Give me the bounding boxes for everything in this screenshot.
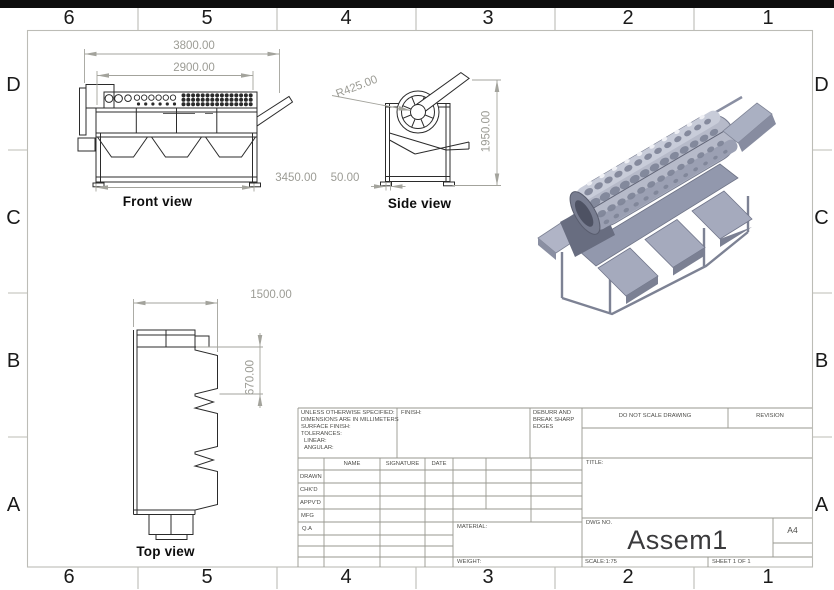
- zone-col-label: 6: [49, 566, 89, 588]
- scale-label: SCALE:1:75: [585, 559, 617, 566]
- dim-top-length: 1500.00: [223, 288, 319, 303]
- col-header-signature: SIGNATURE: [380, 461, 425, 468]
- tolerance-note-line: DIMENSIONS ARE IN MILLIMETERS: [301, 417, 399, 424]
- weight-label: WEIGHT:: [457, 559, 481, 566]
- zone-row-label: D: [1, 74, 26, 96]
- zone-row-label: B: [1, 350, 26, 372]
- tolerance-note-line: SURFACE FINISH:: [301, 424, 399, 431]
- side-view-drawing: [381, 73, 470, 186]
- zone-col-label: 3: [468, 7, 508, 29]
- dim-side-offset: 50.00: [310, 171, 380, 186]
- zone-col-label: 4: [326, 7, 366, 29]
- top-view-label: Top view: [103, 543, 228, 561]
- isometric-view: [538, 97, 776, 314]
- zone-col-label: 1: [748, 7, 788, 29]
- dim-front-overall: 3800.00: [146, 39, 242, 54]
- deburr-note: DEBURR AND BREAK SHARP EDGES: [533, 410, 574, 431]
- revision-label: REVISION: [728, 413, 812, 420]
- tolerance-note: UNLESS OTHERWISE SPECIFIED: DIMENSIONS A…: [301, 410, 399, 452]
- zone-col-label: 2: [608, 566, 648, 588]
- finish-label: FINISH:: [401, 410, 422, 417]
- dim-top-chute: 670.00: [244, 335, 259, 419]
- deburr-note-line: DEBURR AND: [533, 410, 574, 417]
- tolerance-note-line: UNLESS OTHERWISE SPECIFIED:: [301, 410, 399, 417]
- sheet-label: SHEET 1 OF 1: [712, 559, 751, 566]
- zone-row-label: D: [810, 74, 833, 96]
- row-label-chkd: CHK'D: [300, 487, 318, 494]
- zone-col-label: 3: [468, 566, 508, 588]
- zone-row-label: A: [1, 494, 26, 516]
- side-view-label: Side view: [357, 195, 482, 213]
- front-view-label: Front view: [95, 193, 220, 211]
- dwg-no-value: Assem1: [600, 524, 755, 556]
- dim-side-height: 1950.00: [480, 90, 495, 174]
- tolerance-note-line: TOLERANCES:: [301, 431, 399, 438]
- zone-col-label: 6: [49, 7, 89, 29]
- dim-front-drum: 2900.00: [146, 61, 242, 76]
- zone-row-label: C: [1, 207, 26, 229]
- paper-size-label: A4: [773, 524, 812, 537]
- col-header-name: NAME: [324, 461, 380, 468]
- zone-row-label: C: [810, 207, 833, 229]
- drawing-sheet-page: { "zones": { "columns": ["6","5","4","3"…: [0, 0, 834, 590]
- do-not-scale-label: DO NOT SCALE DRAWING: [582, 413, 728, 420]
- row-label-drawn: DRAWN: [300, 474, 322, 481]
- zone-row-label: A: [810, 494, 833, 516]
- title-label: TITLE:: [586, 460, 603, 467]
- deburr-note-line: EDGES: [533, 424, 574, 431]
- top-view-drawing: [134, 330, 218, 540]
- row-label-appvd: APPV'D: [300, 500, 321, 507]
- zone-row-label: B: [810, 350, 833, 372]
- deburr-note-line: BREAK SHARP: [533, 417, 574, 424]
- row-label-mfg: MFG: [301, 513, 314, 520]
- zone-col-label: 1: [748, 566, 788, 588]
- tolerance-note-line: ANGULAR:: [301, 445, 399, 452]
- row-label-qa: Q.A: [302, 526, 312, 533]
- tolerance-note-line: LINEAR:: [301, 438, 399, 445]
- drawing-canvas: [0, 0, 834, 590]
- zone-col-label: 5: [187, 566, 227, 588]
- material-label: MATERIAL:: [457, 524, 487, 531]
- col-header-date: DATE: [425, 461, 453, 468]
- zone-col-label: 2: [608, 7, 648, 29]
- zone-col-label: 5: [187, 7, 227, 29]
- zone-col-label: 4: [326, 566, 366, 588]
